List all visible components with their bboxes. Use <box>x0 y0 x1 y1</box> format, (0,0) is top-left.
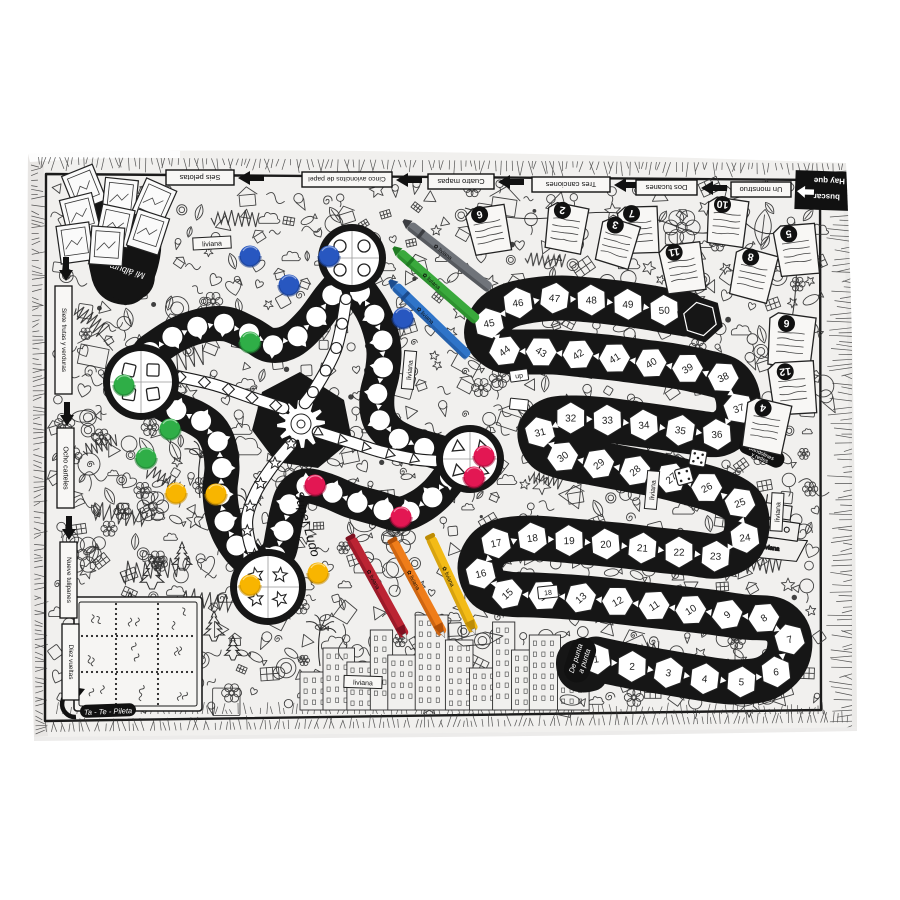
svg-text:36: 36 <box>711 430 723 442</box>
svg-text:liviana: liviana <box>353 680 373 688</box>
svg-text:34: 34 <box>638 420 650 432</box>
svg-text:liviana: liviana <box>202 240 222 248</box>
svg-text:47: 47 <box>548 293 561 305</box>
svg-text:Siete frutas y verduras: Siete frutas y verduras <box>60 308 67 372</box>
svg-text:Seis pelotas: Seis pelotas <box>179 173 220 182</box>
svg-text:46: 46 <box>512 298 525 310</box>
svg-text:Diez vueltas: Diez vueltas <box>67 645 74 680</box>
svg-text:Hay que: Hay que <box>813 176 845 186</box>
svg-text:10: 10 <box>716 198 729 211</box>
svg-text:33: 33 <box>602 416 614 427</box>
svg-text:50: 50 <box>658 306 670 318</box>
svg-text:2: 2 <box>629 662 635 673</box>
svg-text:21: 21 <box>636 543 648 555</box>
svg-text:liviana: liviana <box>774 502 782 522</box>
svg-text:Ocho carteles: Ocho carteles <box>62 446 69 490</box>
svg-text:24: 24 <box>739 532 752 544</box>
svg-text:Nueve tulipanes: Nueve tulipanes <box>65 557 72 603</box>
svg-text:49: 49 <box>622 300 634 311</box>
svg-text:32: 32 <box>565 413 577 424</box>
svg-text:6: 6 <box>783 317 790 329</box>
svg-text:up: up <box>515 372 524 380</box>
svg-text:Ta - Te - Pileta: Ta - Te - Pileta <box>84 706 133 717</box>
svg-text:12: 12 <box>779 365 792 378</box>
svg-text:48: 48 <box>586 295 598 306</box>
svg-text:19: 19 <box>563 536 575 547</box>
svg-text:22: 22 <box>673 548 685 559</box>
svg-text:Un monstruo: Un monstruo <box>740 185 783 194</box>
svg-text:Cuatro mapas: Cuatro mapas <box>437 177 484 186</box>
svg-text:23: 23 <box>710 551 722 563</box>
svg-text:Dos tucanes: Dos tucanes <box>645 183 687 192</box>
svg-text:7: 7 <box>628 207 635 219</box>
svg-text:18: 18 <box>526 533 539 545</box>
svg-text:20: 20 <box>600 539 612 551</box>
svg-text:35: 35 <box>674 425 687 438</box>
svg-text:18: 18 <box>544 590 553 598</box>
svg-text:11: 11 <box>667 245 680 259</box>
svg-text:buscar: buscar <box>814 192 841 202</box>
svg-text:Tres canciones: Tres canciones <box>545 180 596 189</box>
svg-text:Cinco avioncitos de papel: Cinco avioncitos de papel <box>308 175 386 182</box>
